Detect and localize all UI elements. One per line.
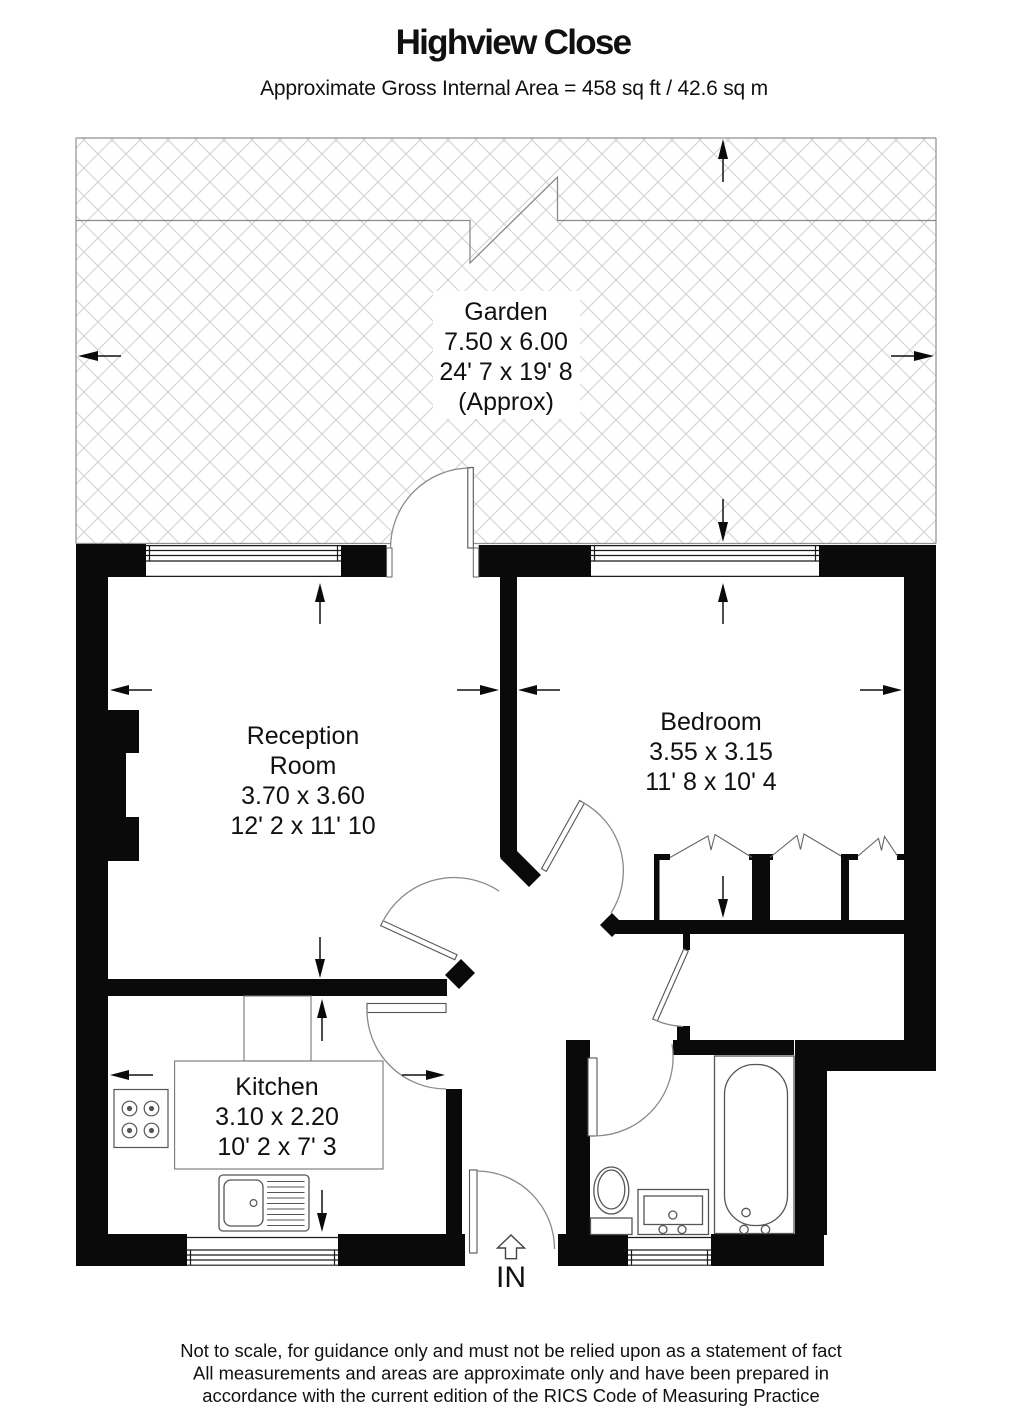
svg-text:Highview Close: Highview Close [396, 23, 632, 62]
svg-text:11' 8 x 10' 4: 11' 8 x 10' 4 [645, 768, 776, 796]
svg-text:IN: IN [496, 1261, 526, 1294]
svg-text:Not to scale, for guidance onl: Not to scale, for guidance only and must… [180, 1340, 841, 1361]
svg-text:3.10 x 2.20: 3.10 x 2.20 [215, 1103, 339, 1131]
svg-text:Approximate Gross Internal Are: Approximate Gross Internal Area = 458 sq… [260, 77, 768, 100]
svg-text:accordance with the current ed: accordance with the current edition of t… [202, 1385, 819, 1406]
svg-text:Garden: Garden [464, 298, 547, 326]
svg-text:Kitchen: Kitchen [235, 1073, 318, 1101]
svg-text:Bedroom: Bedroom [660, 708, 761, 736]
svg-text:(Approx): (Approx) [458, 388, 554, 416]
svg-text:3.70 x 3.60: 3.70 x 3.60 [241, 782, 365, 810]
svg-text:Room: Room [270, 752, 337, 780]
svg-text:7.50 x 6.00: 7.50 x 6.00 [444, 328, 568, 356]
svg-text:All measurements and areas are: All measurements and areas are approxima… [193, 1363, 829, 1384]
svg-text:Reception: Reception [247, 722, 360, 750]
svg-text:10' 2 x 7' 3: 10' 2 x 7' 3 [217, 1133, 336, 1161]
svg-text:12' 2 x 11' 10: 12' 2 x 11' 10 [230, 812, 375, 840]
svg-text:24' 7 x 19' 8: 24' 7 x 19' 8 [439, 358, 572, 386]
svg-text:3.55 x 3.15: 3.55 x 3.15 [649, 738, 773, 766]
